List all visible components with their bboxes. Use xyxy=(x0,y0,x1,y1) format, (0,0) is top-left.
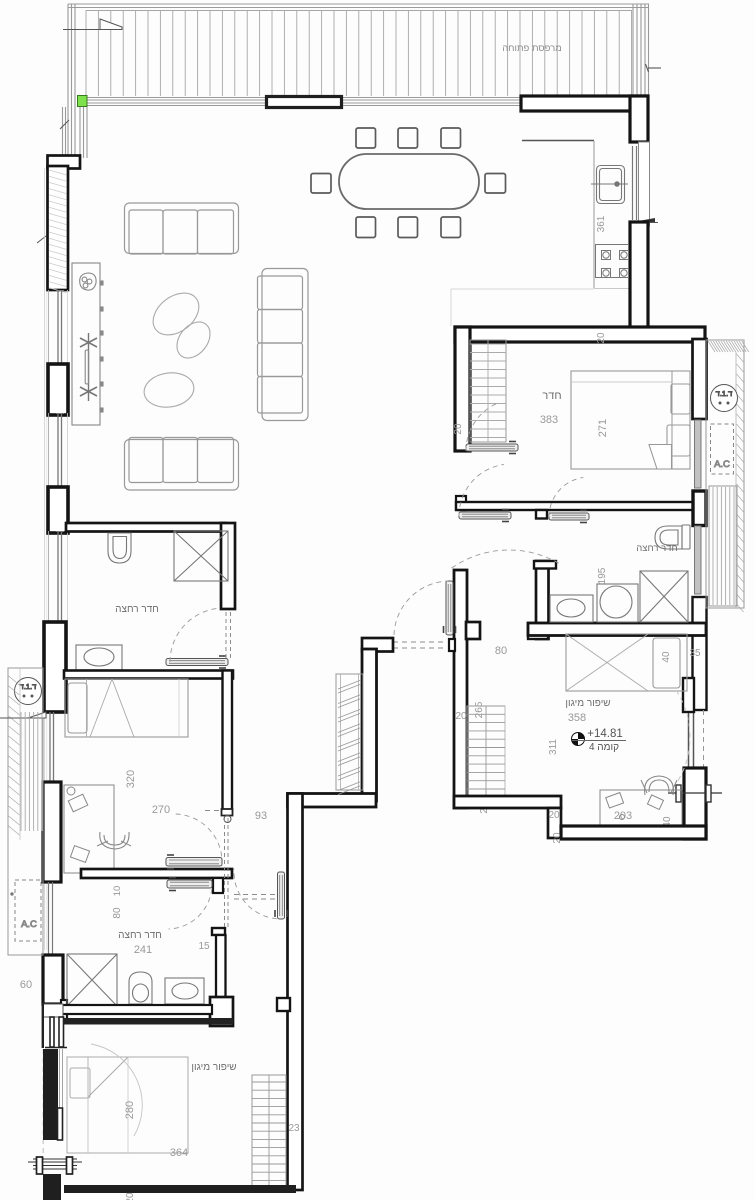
svg-text:A.C: A.C xyxy=(21,919,37,930)
svg-text:40: 40 xyxy=(661,651,672,663)
svg-text:+14.81: +14.81 xyxy=(587,728,623,740)
svg-text:ד.1.ד: ד.1.ד xyxy=(20,682,37,691)
svg-text:20: 20 xyxy=(453,423,464,435)
svg-text:חדר רחצה: חדר רחצה xyxy=(118,930,162,941)
svg-text:361: 361 xyxy=(596,215,607,232)
svg-text:358: 358 xyxy=(568,712,586,724)
svg-text:383: 383 xyxy=(540,414,558,426)
svg-text:15: 15 xyxy=(198,941,210,952)
svg-text:35: 35 xyxy=(689,648,701,659)
svg-text:203: 203 xyxy=(614,810,632,822)
svg-text:280: 280 xyxy=(124,1101,136,1119)
svg-text:שיפור מיגון: שיפור מיגון xyxy=(191,1062,236,1073)
svg-text:265: 265 xyxy=(474,701,485,718)
svg-text:קומה 4: קומה 4 xyxy=(589,742,619,753)
svg-text:320: 320 xyxy=(125,770,137,788)
svg-text:A.C: A.C xyxy=(714,459,730,470)
svg-text:80: 80 xyxy=(112,907,123,919)
svg-text:270: 270 xyxy=(152,804,170,816)
svg-text:חדר: חדר xyxy=(542,390,561,402)
svg-text:364: 364 xyxy=(170,1147,188,1159)
svg-text:20: 20 xyxy=(548,810,560,821)
svg-text:23: 23 xyxy=(288,1123,300,1134)
svg-text:93: 93 xyxy=(255,810,267,822)
svg-text:מרפסת פתוחה: מרפסת פתוחה xyxy=(502,43,562,54)
svg-text:20: 20 xyxy=(596,332,607,344)
svg-text:20: 20 xyxy=(455,711,467,722)
svg-text:20: 20 xyxy=(552,832,563,844)
svg-text:חדר רחצה: חדר רחצה xyxy=(636,543,677,554)
svg-text:חדר רחצה: חדר רחצה xyxy=(115,604,159,615)
svg-text:271: 271 xyxy=(597,419,609,437)
svg-text:241: 241 xyxy=(134,944,152,956)
svg-text:שיפור מיגון: שיפור מיגון xyxy=(565,698,610,709)
svg-text:311: 311 xyxy=(548,739,559,755)
svg-text:80: 80 xyxy=(495,645,507,657)
svg-text:10: 10 xyxy=(112,886,123,897)
svg-text:20: 20 xyxy=(125,1192,136,1200)
svg-text:60: 60 xyxy=(20,979,32,991)
svg-text:195: 195 xyxy=(597,567,608,584)
svg-text:ד.1.ד: ד.1.ד xyxy=(716,389,733,398)
